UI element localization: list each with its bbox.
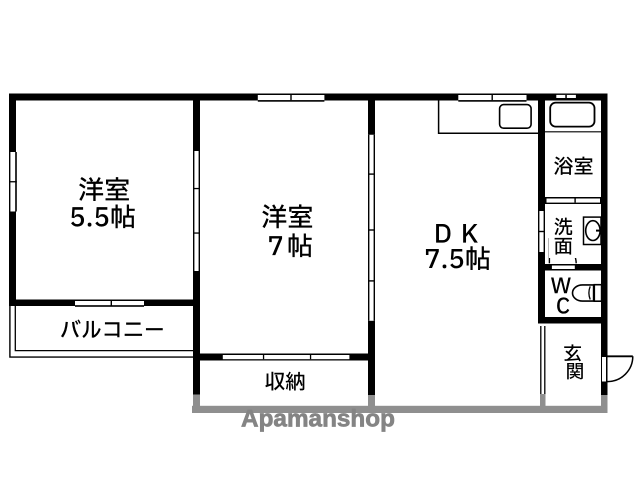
svg-text:Apamanshop: Apamanshop xyxy=(241,405,395,432)
